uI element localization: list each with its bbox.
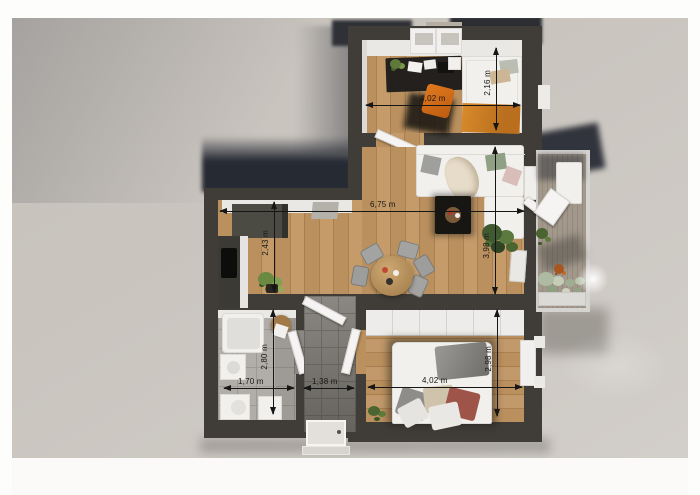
dim-label-bathroom-width: 1,70 m — [238, 378, 264, 386]
counter-edge — [282, 204, 288, 238]
coffee-table-cup-white — [455, 213, 460, 218]
dim-line-kitchen-depth: 2,43 m — [274, 202, 275, 292]
arrow-right-icon — [287, 385, 295, 391]
arrow-down-icon — [493, 123, 499, 131]
bathtub-basin — [227, 318, 260, 349]
office-window-left — [410, 28, 436, 54]
office-window-ledge-outer — [538, 85, 550, 109]
sofa-pillow-gray — [420, 154, 441, 175]
arrow-left-icon — [367, 384, 375, 390]
arrow-down-icon — [270, 407, 276, 415]
sofa-seam — [417, 154, 525, 155]
dim-line-hallway-width: 1,38 m — [304, 388, 354, 389]
dim-line-bedroom-width: 4,02 m — [368, 387, 522, 388]
dining-cup-white — [393, 270, 399, 276]
sofa-pillow-green — [485, 153, 507, 172]
toilet-bowl — [231, 400, 246, 415]
balcony-plant-orange — [554, 264, 564, 274]
margin-bottom — [0, 458, 700, 495]
arrow-down-icon — [271, 285, 277, 293]
arrow-down-icon — [494, 409, 500, 417]
dining-cup-red — [382, 267, 388, 273]
arrow-up-icon — [492, 146, 498, 154]
dining-table — [371, 256, 413, 296]
office-window-right — [436, 28, 462, 54]
bedroom-window-jamb-top — [534, 336, 545, 348]
entrance-door — [306, 420, 346, 446]
office-wall-face-left — [362, 40, 367, 133]
dim-line-living-depth: 3,98 m — [495, 147, 496, 294]
arrow-left-icon — [365, 102, 373, 108]
office-bed-blanket-orange — [462, 103, 521, 134]
desk-plant — [390, 59, 401, 69]
dim-label-living-depth: 3,98 m — [483, 233, 491, 259]
arrow-right-icon — [347, 385, 355, 391]
window-glass — [415, 33, 433, 45]
kitchen-cooktop — [221, 248, 237, 278]
arrow-right-icon — [513, 102, 521, 108]
bedroom-wardrobe — [366, 310, 524, 336]
dim-line-bathroom-depth: 2,80 m — [273, 310, 274, 414]
arrow-up-icon — [270, 309, 276, 317]
lens-flare-soft — [560, 330, 670, 400]
balcony-planter-foliage — [538, 272, 554, 286]
margin-top — [0, 0, 700, 18]
bedroom-window-jamb-bottom — [534, 376, 545, 388]
arrow-left-icon — [219, 208, 227, 214]
margin-left — [0, 0, 12, 495]
desk-paper-2 — [423, 59, 436, 69]
arrow-right-icon — [515, 384, 523, 390]
toilet — [220, 394, 250, 420]
margin-right — [688, 0, 700, 495]
dim-label-office-width: 4,02 m — [420, 95, 446, 103]
dim-label-hallway-width: 1,38 m — [312, 378, 338, 386]
arrow-right-icon — [517, 208, 525, 214]
arrow-up-icon — [494, 309, 500, 317]
sink-bowl — [227, 361, 240, 374]
kitchen-counter-top — [232, 204, 288, 238]
arrow-down-icon — [492, 287, 498, 295]
entrance-step — [302, 446, 350, 455]
dim-line-bedroom-depth: 2,98 m — [497, 310, 498, 416]
bed-blanket-gray — [434, 341, 489, 380]
living-plant-vase — [509, 249, 527, 282]
dim-label-office-depth: 2,16 m — [484, 70, 492, 96]
dim-label-living-width: 6,75 m — [370, 201, 396, 209]
balcony-plant-green-top — [536, 228, 548, 239]
bathtub — [222, 313, 264, 353]
dim-label-bedroom-width: 4,02 m — [422, 377, 448, 385]
dim-line-living-width: 6,75 m — [220, 211, 524, 212]
window-glass — [441, 33, 459, 45]
arrow-up-icon — [271, 201, 277, 209]
dim-line-office-depth: 2,16 m — [496, 48, 497, 130]
kitchen-cabinet-front — [240, 236, 248, 308]
dim-label-bedroom-depth: 2,98 m — [485, 346, 493, 372]
bedroom-plant — [368, 406, 380, 416]
dining-jug-dark — [386, 278, 393, 285]
office-nightstand — [448, 57, 461, 70]
dim-label-bathroom-depth: 2,80 m — [261, 344, 269, 370]
floor-plan-render: 4,02 m 2,16 m 6, — [0, 0, 700, 495]
dim-label-kitchen-depth: 2,43 m — [262, 230, 270, 256]
dim-line-bathroom-width: 1,70 m — [224, 388, 294, 389]
arrow-left-icon — [223, 385, 231, 391]
arrow-up-icon — [493, 47, 499, 55]
dining-chair-sw — [350, 265, 369, 287]
door-handle-icon — [337, 430, 341, 434]
desk-paper-1 — [407, 61, 422, 73]
lens-flare — [576, 262, 610, 296]
arrow-left-icon — [303, 385, 311, 391]
